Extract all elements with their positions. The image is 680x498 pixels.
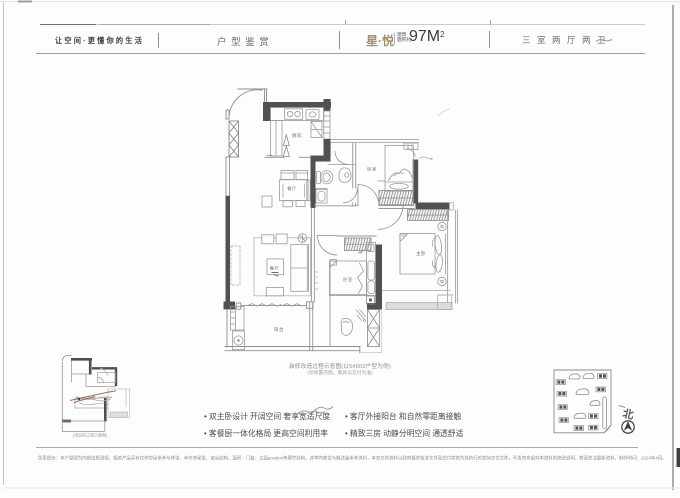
svg-text:(改造前过道示意图): (改造前过道示意图): [73, 432, 108, 438]
svg-text:厨房: 厨房: [292, 132, 302, 139]
svg-text:阳台: 阳台: [274, 326, 284, 333]
svg-text:卧室: 卧室: [343, 276, 352, 283]
svg-text:客厅: 客厅: [270, 265, 279, 272]
svg-text:北: 北: [621, 406, 635, 422]
svg-text:主卧: 主卧: [416, 250, 426, 257]
svg-text:卧室: 卧室: [367, 166, 376, 173]
svg-text:餐厅: 餐厅: [287, 185, 296, 192]
